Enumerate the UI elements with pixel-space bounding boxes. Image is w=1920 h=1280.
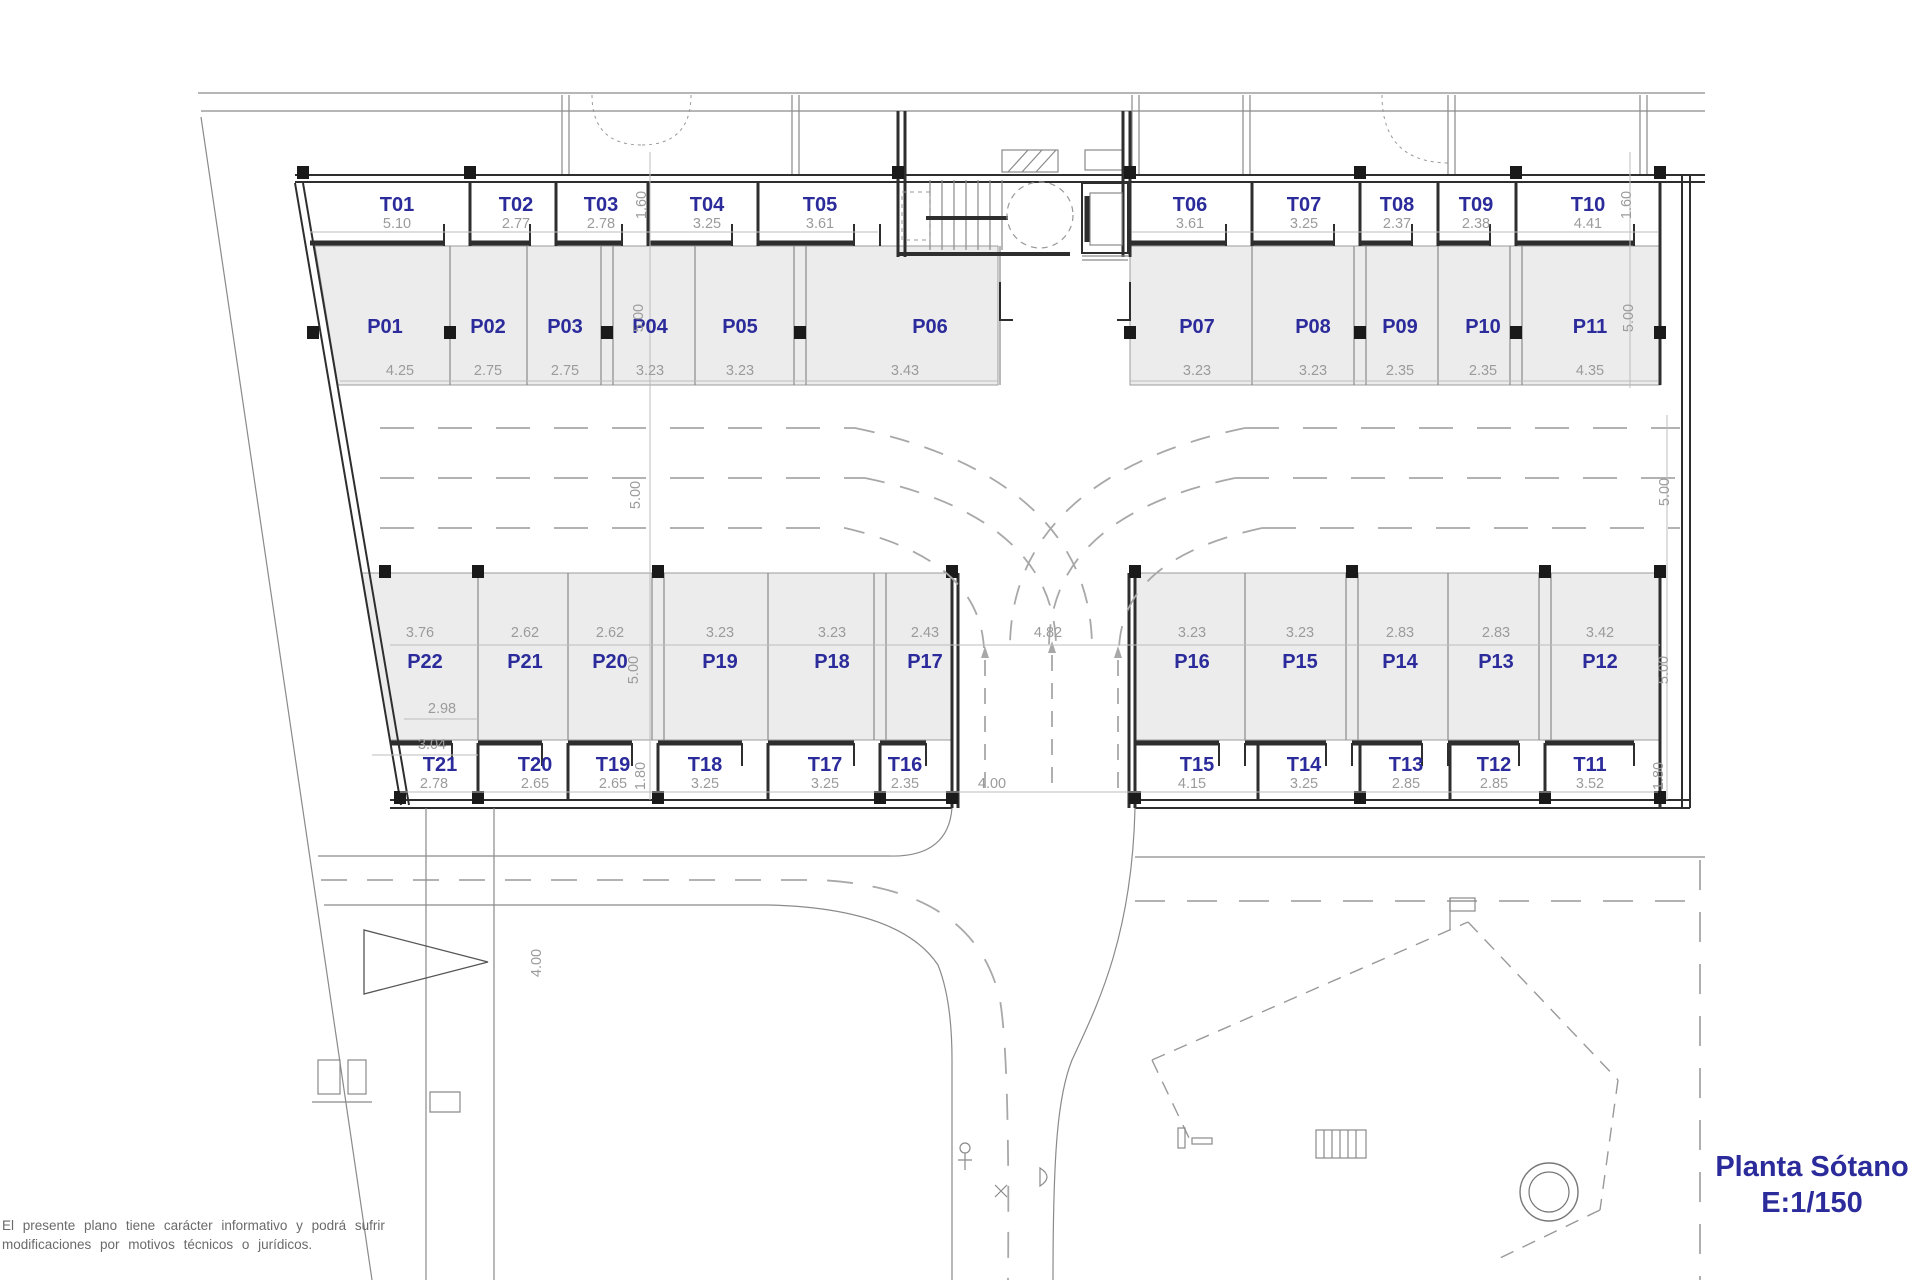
parking-dim: 2.83 (1386, 625, 1414, 641)
plant-icon (995, 1185, 1007, 1197)
t-depth-dim: 1.60 (634, 191, 650, 219)
top-outer-wall (295, 175, 1705, 182)
storage-label: T01 (380, 194, 414, 216)
top-storage-labels: T01 5.10 T02 2.77 T03 2.78 T04 3.25 T05 … (380, 194, 1605, 232)
storage-label: T20 (518, 754, 552, 776)
storage-dim: 2.38 (1462, 216, 1490, 232)
storage-dim: 2.78 (420, 776, 448, 792)
parking-dim: 3.23 (1178, 625, 1206, 641)
sidewalk-dashed-right (1135, 860, 1705, 1280)
p22-front-dim: 2.98 (428, 701, 456, 717)
parking-label: P13 (1478, 651, 1514, 673)
parking-dim: 2.75 (551, 363, 579, 379)
storage-label: T12 (1477, 754, 1511, 776)
storage-label: T07 (1287, 194, 1321, 216)
road-east-edge (1053, 808, 1135, 1280)
p-depth-dim: 5.00 (626, 656, 642, 684)
ramp-side-walls (952, 573, 1135, 808)
garden-area (312, 898, 1618, 1258)
manhole-inner-circle (1529, 1172, 1569, 1212)
storage-dim: 2.65 (521, 776, 549, 792)
entry-door-swing-left (592, 95, 691, 145)
storage-dim: 3.25 (691, 776, 719, 792)
aisle-lane-lines (380, 428, 1680, 528)
parking-dim: 3.23 (706, 625, 734, 641)
garden-boundary-dashed (1152, 922, 1618, 1258)
parking-dim: 3.42 (1586, 625, 1614, 641)
bench-seat-icon (1192, 1138, 1212, 1144)
storage-label: T11 (1573, 754, 1606, 776)
parking-label: P17 (907, 651, 943, 673)
parking-dim: 2.43 (911, 625, 939, 641)
parking-label: P02 (470, 316, 506, 338)
road-south-edge (324, 905, 952, 1280)
storage-dim: 2.37 (1383, 216, 1411, 232)
access-width-dim: 4.00 (529, 949, 545, 977)
parking-dim: 4.25 (386, 363, 414, 379)
storage-label: T02 (499, 194, 533, 216)
storage-label: T08 (1380, 194, 1414, 216)
storage-dim: 2.65 (599, 776, 627, 792)
storage-label: T13 (1389, 754, 1423, 776)
stair-treads (930, 180, 1002, 250)
flag-icon (1450, 898, 1475, 911)
parking-label: P21 (507, 651, 543, 673)
storage-dim: 4.15 (1178, 776, 1206, 792)
access-road (318, 808, 1705, 1280)
parking-label: P06 (912, 316, 948, 338)
storage-label: T18 (688, 754, 722, 776)
stair-turning-circle (1007, 182, 1073, 248)
parking-label: P18 (814, 651, 850, 673)
parking-dim: 2.35 (1386, 363, 1414, 379)
parking-dim: 2.62 (511, 625, 539, 641)
aisle-width-dim: 5.00 (628, 481, 644, 509)
road-north-edge (318, 808, 952, 856)
parking-label: P09 (1382, 316, 1418, 338)
storage-dim: 3.25 (1290, 776, 1318, 792)
bottom-storage-labels: T21 2.78 T20 2.65 T19 2.65 T18 3.25 T17 … (420, 754, 1607, 792)
parking-dim: 3.23 (1299, 363, 1327, 379)
disclaimer-line-1: El presente plano tiene carácter informa… (2, 1218, 385, 1233)
parking-dim: 3.23 (726, 363, 754, 379)
parking-dim: 2.62 (596, 625, 624, 641)
storage-label: T06 (1173, 194, 1207, 216)
right-outer-wall (1682, 175, 1690, 808)
storage-dim: 3.61 (806, 216, 834, 232)
road-centerline (321, 880, 1008, 1280)
storage-dim: 2.77 (502, 216, 530, 232)
t-depth-dim: 1.80 (633, 762, 649, 790)
storage-label: T17 (808, 754, 842, 776)
storage-label: T04 (690, 194, 725, 216)
shrub-icon (1040, 1168, 1047, 1186)
entrance-hatch-lines (1008, 150, 1056, 172)
storage-dim: 3.52 (1576, 776, 1604, 792)
elevator-sill (1082, 256, 1128, 260)
storage-label: T19 (596, 754, 630, 776)
bottom-outer-wall (390, 800, 1690, 808)
parking-label: P10 (1465, 316, 1501, 338)
parking-dim: 3.23 (818, 625, 846, 641)
t-depth-dim: 1.60 (1619, 191, 1635, 219)
ramp-width-dim: 4.00 (978, 776, 1006, 792)
storage-dim: 5.10 (383, 216, 411, 232)
storage-label: T14 (1287, 754, 1322, 776)
p-depth-dim: 5.00 (1621, 304, 1637, 332)
p22-back-dim: 3.04 (418, 737, 446, 753)
storage-dim: 3.61 (1176, 216, 1204, 232)
utility-detail-lines (312, 1092, 460, 1112)
parking-dim: 4.35 (1576, 363, 1604, 379)
elevator-cab (1090, 193, 1122, 245)
parking-label: P08 (1295, 316, 1331, 338)
site-line-top (198, 93, 1705, 111)
storage-label: T16 (888, 754, 922, 776)
grate-bars (1324, 1130, 1356, 1158)
parking-dim: 2.75 (474, 363, 502, 379)
p-depth-dim: 5.00 (631, 304, 647, 332)
disclaimer-line-2: modificaciones por motivos técnicos o ju… (2, 1237, 312, 1252)
storage-label: T21 (423, 754, 457, 776)
parking-label: P22 (407, 651, 443, 673)
parking-dim: 3.23 (1286, 625, 1314, 641)
parking-label: P15 (1282, 651, 1318, 673)
parking-dim: 3.43 (891, 363, 919, 379)
sheet-scale: E:1/150 (1761, 1187, 1863, 1219)
storage-dim: 4.41 (1574, 216, 1602, 232)
storage-dim: 2.85 (1480, 776, 1508, 792)
entry-door-swing-right (1382, 95, 1450, 163)
storage-label: T10 (1571, 194, 1605, 216)
parking-label: P12 (1582, 651, 1618, 673)
parking-label: P05 (722, 316, 758, 338)
parking-label: P07 (1179, 316, 1215, 338)
figure-head-icon (960, 1143, 970, 1153)
mailbox-block (1085, 150, 1123, 170)
ramp-lane-lines (985, 655, 1118, 795)
t-depth-dim: 1.80 (1651, 762, 1667, 790)
parking-dim: 3.23 (636, 363, 664, 379)
ramp-lane-edges (426, 808, 494, 1280)
storage-dim: 2.35 (891, 776, 919, 792)
bench-leg-icon (1178, 1128, 1185, 1148)
storage-label: T15 (1180, 754, 1214, 776)
exterior-wall-stubs (562, 95, 1647, 175)
core-lobby-wall-returns (1000, 282, 1130, 320)
parking-dim: 2.83 (1482, 625, 1510, 641)
aisle-width-dim: 5.00 (1657, 478, 1673, 506)
parking-label: P16 (1174, 651, 1210, 673)
storage-label: T09 (1459, 194, 1493, 216)
parking-label: P19 (702, 651, 738, 673)
storage-label: T05 (803, 194, 837, 216)
parking-dim: 3.76 (406, 625, 434, 641)
storage-dim: 3.25 (693, 216, 721, 232)
figure-body-icon (958, 1153, 972, 1170)
parking-label: P14 (1382, 651, 1418, 673)
parking-label: P01 (367, 316, 403, 338)
floor-plan-sheet: T01 5.10 T02 2.77 T03 2.78 T04 3.25 T05 … (0, 0, 1920, 1280)
utility-box-1 (318, 1060, 340, 1094)
parking-dim: 3.23 (1183, 363, 1211, 379)
storage-dim: 2.85 (1392, 776, 1420, 792)
utility-box-2 (348, 1060, 366, 1094)
floor-plan-drawing: T01 5.10 T02 2.77 T03 2.78 T04 3.25 T05 … (0, 0, 1920, 1280)
p-depth-dim: 5.00 (1656, 656, 1672, 684)
storage-dim: 3.25 (1290, 216, 1318, 232)
sheet-texts: Planta Sótano E:1/150 El presente plano … (2, 1151, 1909, 1252)
parking-dim: 2.35 (1469, 363, 1497, 379)
storage-label: T03 (584, 194, 618, 216)
ramp-opening-dim: 4.82 (1034, 625, 1062, 641)
storage-dim: 3.25 (811, 776, 839, 792)
parking-label: P20 (592, 651, 628, 673)
parking-label: P11 (1573, 316, 1607, 338)
sheet-title: Planta Sótano (1715, 1151, 1908, 1183)
storage-dim: 2.78 (587, 216, 615, 232)
parking-label: P03 (547, 316, 583, 338)
